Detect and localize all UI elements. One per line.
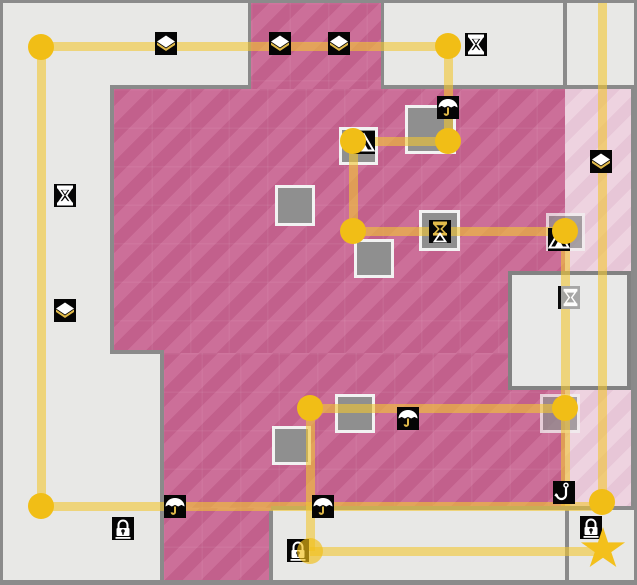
route-node[interactable] <box>589 489 615 515</box>
diamond-icon[interactable] <box>155 32 177 55</box>
game-map <box>0 0 637 585</box>
route-node[interactable] <box>552 218 578 244</box>
lock-icon[interactable] <box>580 516 602 539</box>
gray-box <box>275 185 315 226</box>
map-wall <box>110 85 251 89</box>
umbrella-icon[interactable] <box>437 96 459 119</box>
path-segment <box>306 408 315 551</box>
map-wall <box>563 3 567 89</box>
path-segment <box>598 3 607 502</box>
path-segment <box>561 231 570 506</box>
umbrella-icon[interactable] <box>397 407 419 430</box>
gray-box <box>335 394 375 433</box>
route-node[interactable] <box>28 493 54 519</box>
diamond-icon[interactable] <box>590 150 612 173</box>
pink-dark-region <box>163 508 271 585</box>
umbrella-icon[interactable] <box>312 495 334 518</box>
route-node[interactable] <box>340 218 366 244</box>
path-segment <box>444 46 453 141</box>
diamond-icon[interactable] <box>269 32 291 55</box>
route-node[interactable] <box>297 395 323 421</box>
route-node[interactable] <box>435 33 461 59</box>
route-node[interactable] <box>340 128 366 154</box>
route-node[interactable] <box>552 395 578 421</box>
path-segment <box>41 42 448 51</box>
hourglass-tent-icon[interactable] <box>429 220 451 243</box>
map-wall <box>110 350 164 354</box>
route-node[interactable] <box>28 34 54 60</box>
map-wall <box>631 89 634 506</box>
hourglass-gray-icon[interactable] <box>558 286 580 309</box>
map-wall <box>269 510 273 585</box>
route-node[interactable] <box>435 128 461 154</box>
diamond-icon[interactable] <box>328 32 350 55</box>
gray-box <box>354 239 394 278</box>
path-segment <box>310 404 565 413</box>
route-node[interactable] <box>297 538 323 564</box>
hook-icon[interactable] <box>553 481 575 504</box>
lock-icon[interactable] <box>112 517 134 540</box>
diamond-icon[interactable] <box>54 299 76 322</box>
hourglass-icon[interactable] <box>54 184 76 207</box>
path-segment <box>353 227 565 236</box>
map-wall <box>160 350 164 585</box>
map-wall <box>110 85 114 354</box>
umbrella-icon[interactable] <box>164 495 186 518</box>
hourglass-icon[interactable] <box>465 33 487 56</box>
path-segment <box>310 547 604 556</box>
path-segment <box>37 47 46 506</box>
